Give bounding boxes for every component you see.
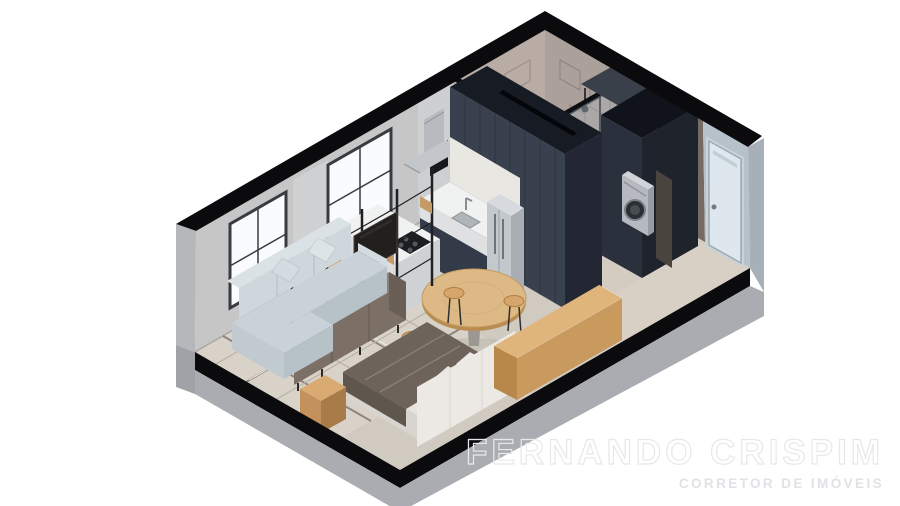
entry-door (707, 138, 743, 266)
floorplan-render: FERNANDO CRISPIM CORRETOR DE IMÓVEIS (0, 0, 900, 506)
west-wall-outer (176, 224, 196, 352)
watermark-subtitle: CORRETOR DE IMÓVEIS (679, 476, 884, 491)
watermark-title: FERNANDO CRISPIM (466, 433, 884, 472)
render-canvas: FERNANDO CRISPIM CORRETOR DE IMÓVEIS (0, 0, 900, 506)
wardrobe-closet (601, 82, 698, 278)
east-wall-outer (748, 138, 764, 292)
watermark: FERNANDO CRISPIM CORRETOR DE IMÓVEIS (466, 433, 884, 491)
door-handle (712, 205, 717, 210)
west-corner-cap (176, 345, 195, 394)
perforated-screen (656, 170, 672, 268)
